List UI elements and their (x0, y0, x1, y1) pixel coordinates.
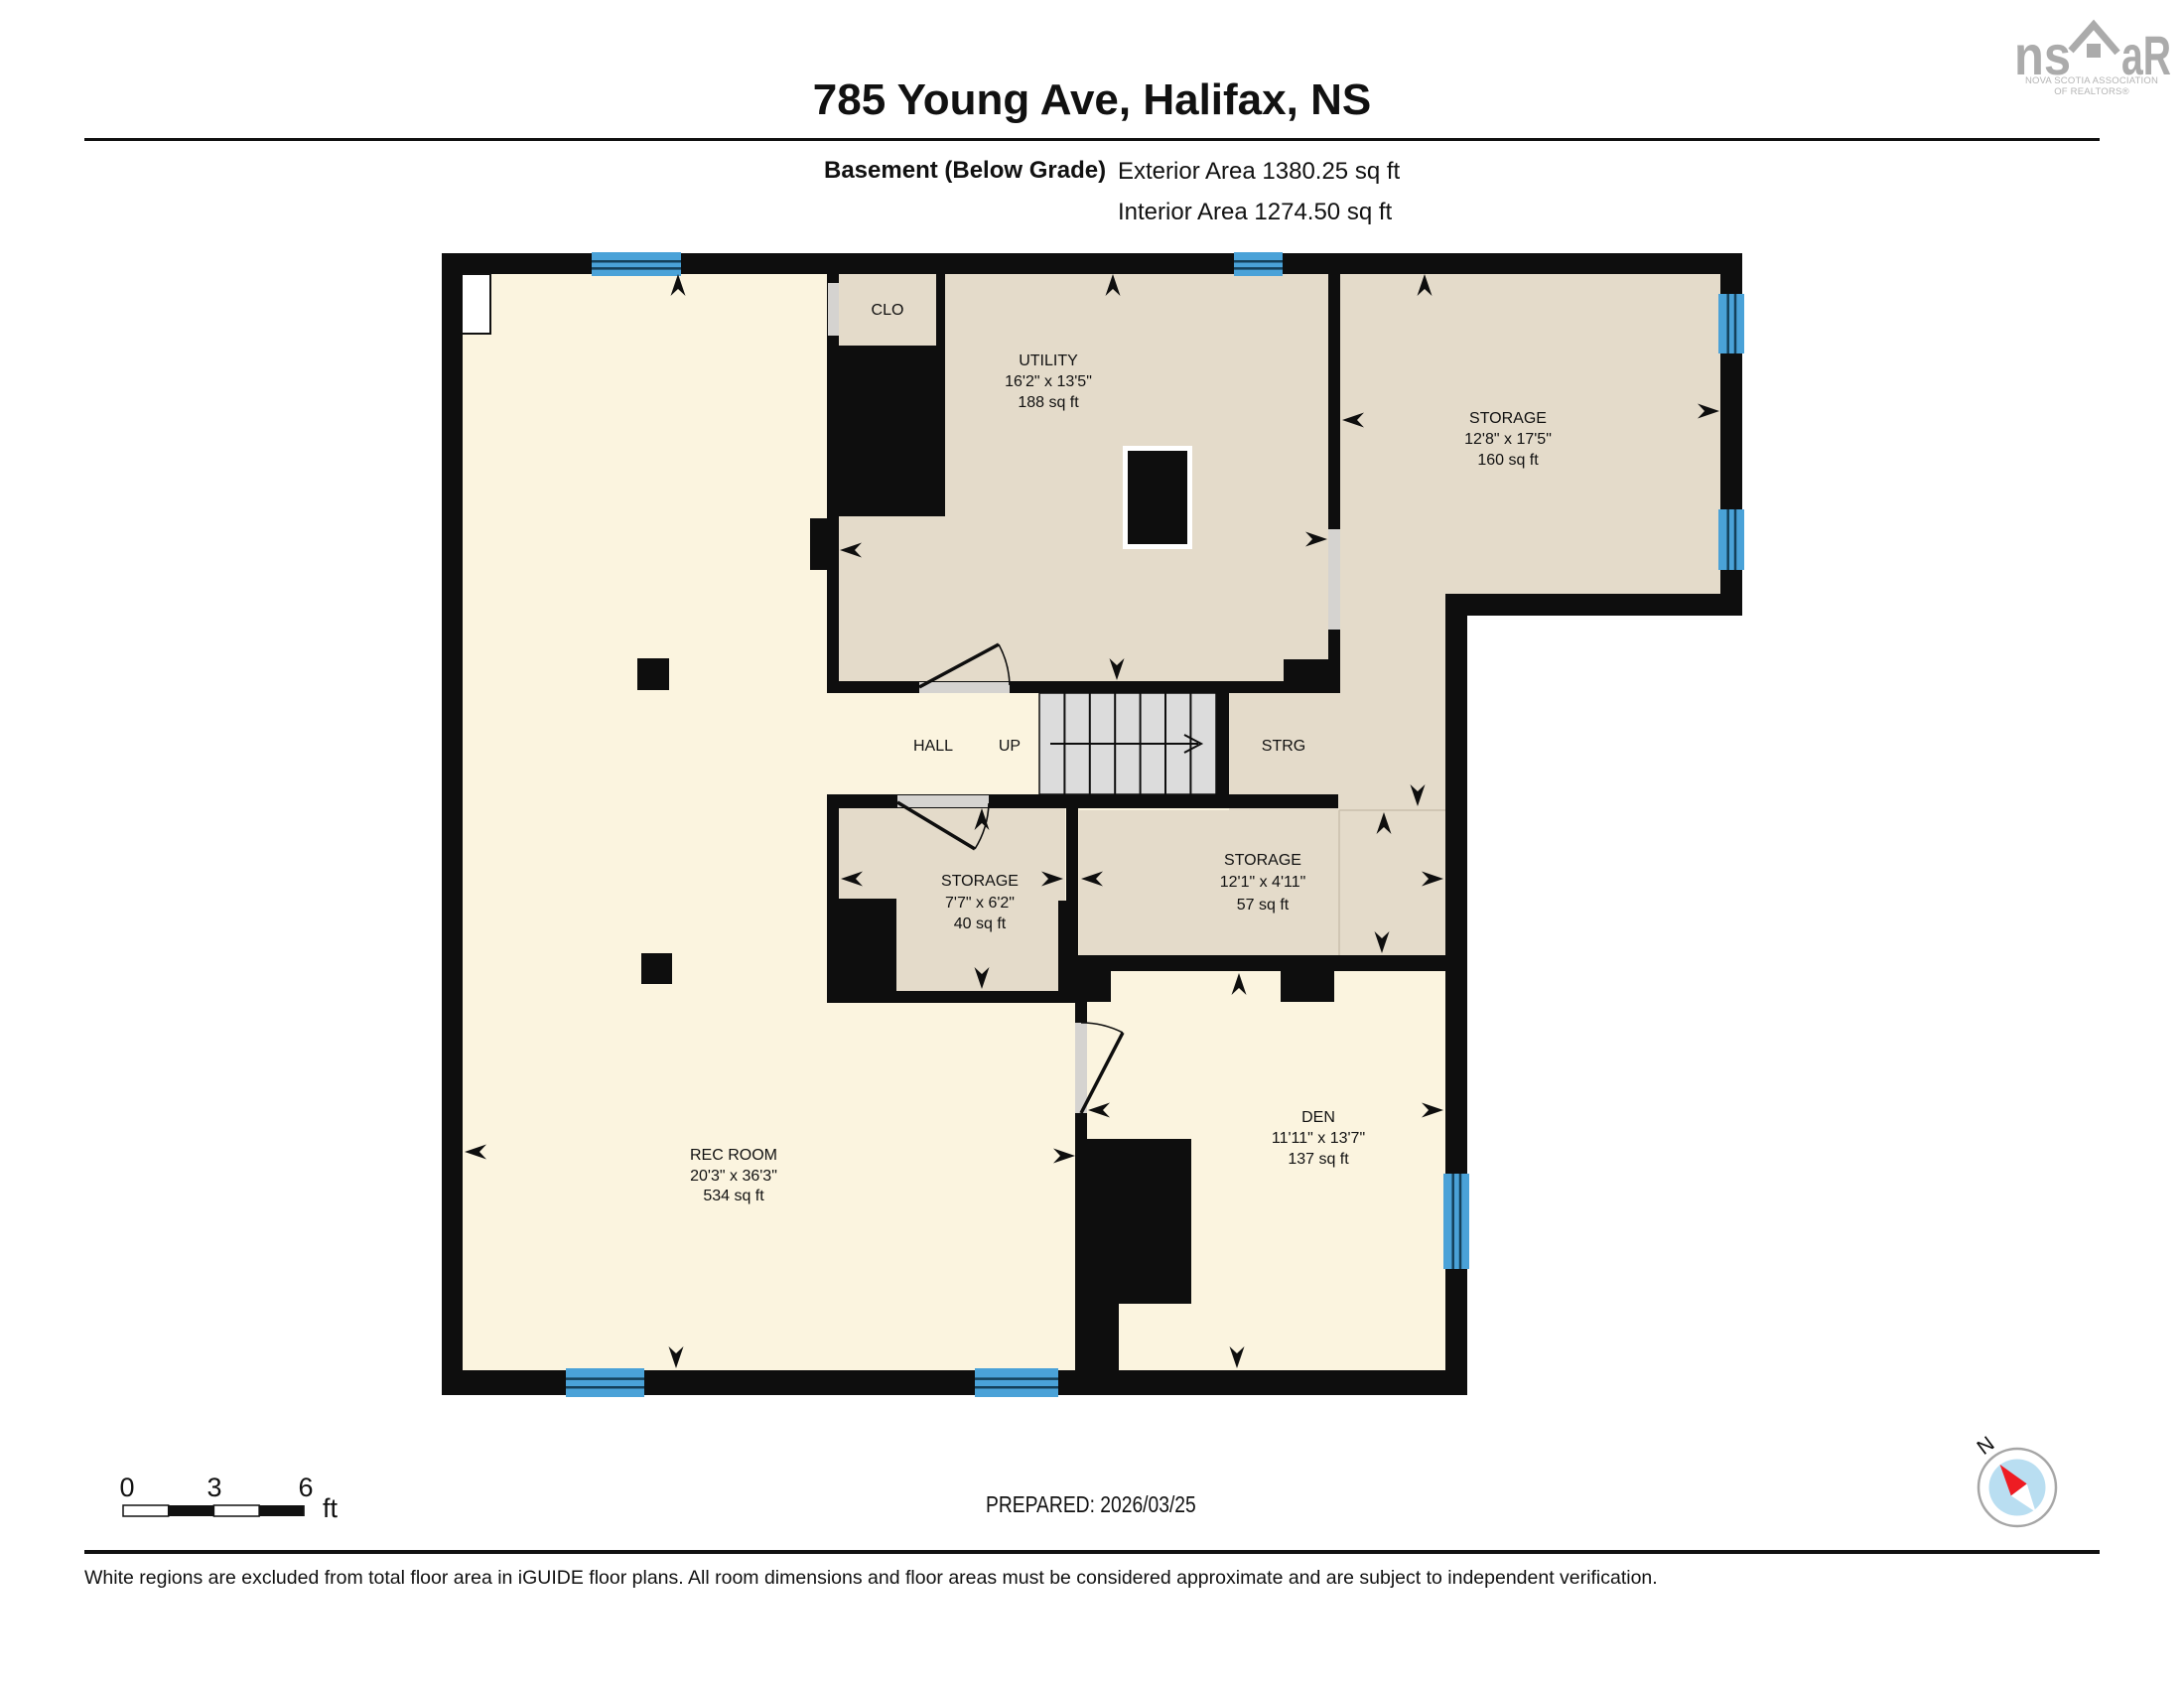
svg-text:534 sq ft: 534 sq ft (703, 1188, 764, 1204)
svg-text:HALL: HALL (913, 738, 953, 755)
svg-text:STRG: STRG (1262, 738, 1305, 755)
svg-text:160 sq ft: 160 sq ft (1477, 452, 1539, 469)
svg-text:STORAGE: STORAGE (1224, 852, 1301, 869)
svg-text:57 sq ft: 57 sq ft (1237, 897, 1290, 914)
svg-text:6: 6 (298, 1473, 313, 1502)
svg-text:REC ROOM: REC ROOM (690, 1147, 777, 1164)
svg-text:CLO: CLO (872, 302, 904, 319)
svg-text:0: 0 (119, 1473, 134, 1502)
svg-text:12'1" x 4'11": 12'1" x 4'11" (1220, 874, 1306, 891)
svg-text:UP: UP (999, 738, 1021, 755)
svg-text:188 sq ft: 188 sq ft (1018, 394, 1079, 411)
svg-text:7'7" x 6'2": 7'7" x 6'2" (945, 895, 1015, 912)
svg-text:12'8" x 17'5": 12'8" x 17'5" (1464, 431, 1552, 448)
svg-text:11'11" x 13'7": 11'11" x 13'7" (1272, 1130, 1365, 1147)
svg-text:40 sq ft: 40 sq ft (954, 915, 1007, 932)
svg-text:STORAGE: STORAGE (1469, 410, 1547, 427)
svg-text:STORAGE: STORAGE (941, 873, 1019, 890)
svg-text:137 sq ft: 137 sq ft (1288, 1151, 1349, 1168)
svg-text:DEN: DEN (1301, 1109, 1335, 1126)
svg-text:ft: ft (323, 1493, 339, 1523)
svg-text:3: 3 (206, 1473, 221, 1502)
svg-text:16'2" x 13'5": 16'2" x 13'5" (1005, 373, 1092, 390)
svg-text:UTILITY: UTILITY (1019, 352, 1078, 369)
svg-text:20'3" x 36'3": 20'3" x 36'3" (690, 1168, 777, 1185)
